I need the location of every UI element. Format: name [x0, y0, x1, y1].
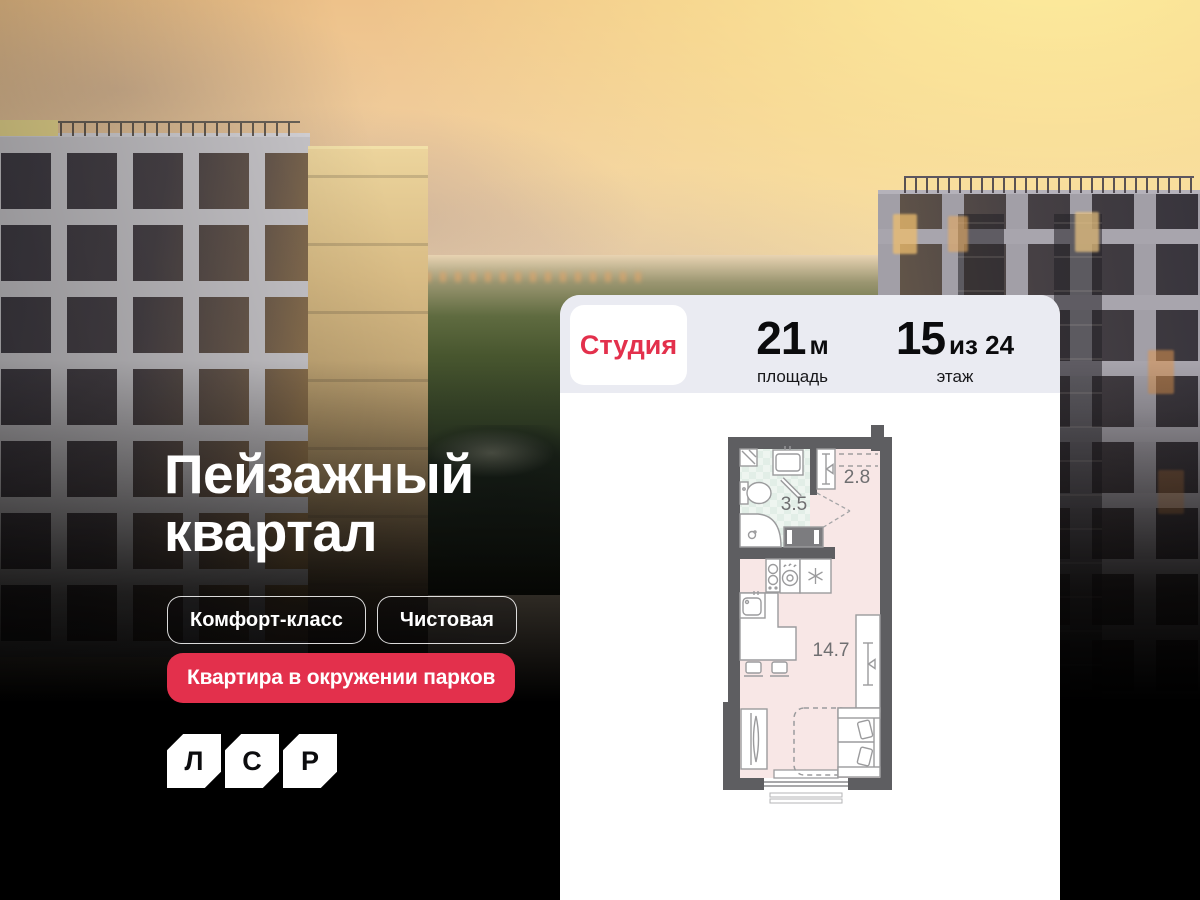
- area-stat: 21 м площадь: [720, 315, 865, 387]
- lsr-logo: Л С Р: [167, 734, 337, 788]
- area-number: 21: [756, 315, 805, 361]
- window: [764, 779, 848, 803]
- project-title: Пейзажный квартал: [164, 445, 544, 561]
- radiator: [774, 770, 838, 778]
- bathroom-area-label: 3.5: [781, 494, 807, 515]
- entry-closet: [817, 449, 835, 489]
- card-header: Студия 21 м площадь 15 из 24 этаж: [560, 295, 1060, 393]
- sofa: [838, 708, 880, 777]
- logo-tile-r: Р: [283, 734, 337, 788]
- floor-number: 15: [896, 315, 945, 361]
- hero-content: Пейзажный квартал Комфорт-класс Чистовая…: [0, 0, 560, 900]
- living-area-label: 14.7: [813, 640, 850, 661]
- feature-badges: Комфорт-класс Чистовая: [167, 596, 517, 644]
- kitchen-appliances: [766, 559, 831, 593]
- apartment-type-chip: Студия: [570, 305, 687, 385]
- badge-class: Комфорт-класс: [167, 596, 366, 644]
- logo-tile-l: Л: [167, 734, 221, 788]
- floor-caption: этаж: [882, 367, 1028, 387]
- logo-tile-s: С: [225, 734, 279, 788]
- area-unit: м: [809, 330, 828, 361]
- hallway-area-label: 2.8: [844, 467, 870, 488]
- floor-of-total: из 24: [949, 330, 1014, 361]
- floor-value: 15 из 24: [882, 315, 1028, 361]
- floor-stat: 15 из 24 этаж: [882, 315, 1028, 387]
- promo-banner: Пейзажный квартал Комфорт-класс Чистовая…: [0, 0, 1200, 900]
- floor-plan: 3.5 2.8 14.7: [722, 423, 898, 807]
- highlight-badge: Квартира в окружении парков: [167, 653, 515, 703]
- apartment-card[interactable]: Студия 21 м площадь 15 из 24 этаж: [560, 295, 1060, 900]
- area-caption: площадь: [720, 367, 865, 387]
- area-value: 21 м: [720, 315, 865, 361]
- tv-stand: [741, 709, 767, 769]
- apartment-type-label: Студия: [580, 330, 677, 361]
- wardrobe: [856, 615, 880, 712]
- badge-finish: Чистовая: [377, 596, 517, 644]
